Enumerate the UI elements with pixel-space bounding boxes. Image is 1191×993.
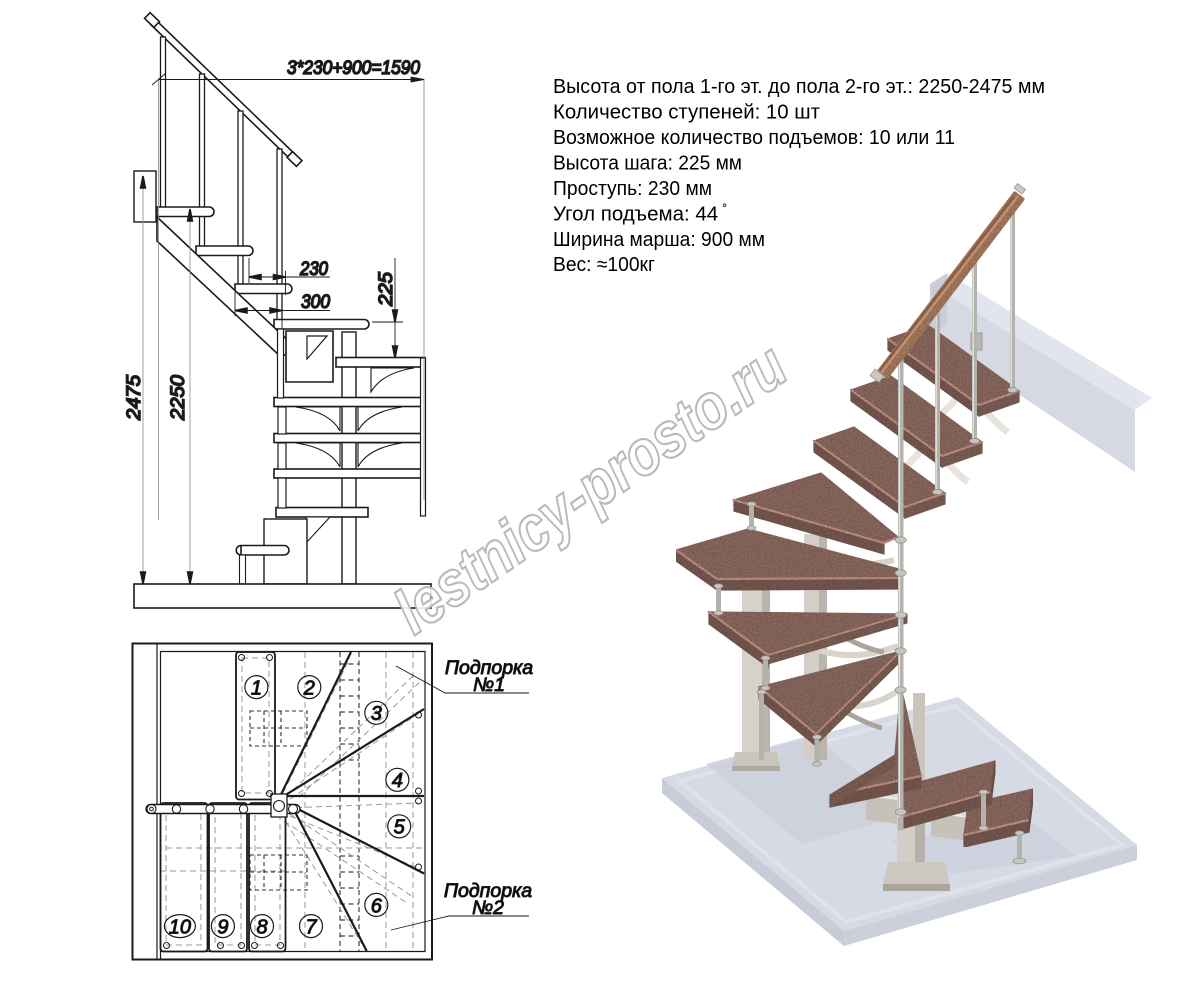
svg-text:Вес: ≈100кг: Вес: ≈100кг [553, 253, 655, 276]
svg-text:7: 7 [305, 917, 317, 939]
svg-text:5: 5 [394, 817, 406, 839]
svg-text:9: 9 [217, 917, 228, 939]
svg-text:3: 3 [371, 703, 382, 725]
svg-text:Количество ступеней: 10 шт: Количество ступеней: 10 шт [553, 101, 821, 124]
svg-text:Высота от пола 1-го эт. до пол: Высота от пола 1-го эт. до пола 2-го эт.… [553, 75, 1045, 98]
svg-text:3*230+900=1590: 3*230+900=1590 [287, 58, 420, 79]
svg-text:230: 230 [299, 259, 328, 280]
svg-text:Высота шага: 225 мм: Высота шага: 225 мм [553, 152, 742, 175]
svg-text:4: 4 [392, 770, 403, 792]
svg-text:1: 1 [251, 678, 262, 700]
svg-text:№2: №2 [472, 897, 504, 919]
svg-text:Возможное количество подъемов:: Возможное количество подъемов: 10 или 11 [553, 126, 955, 149]
svg-text:10: 10 [169, 917, 191, 939]
svg-text:225: 225 [376, 272, 397, 308]
svg-text:300: 300 [301, 292, 330, 313]
svg-text:2: 2 [303, 678, 315, 700]
svg-text:№1: №1 [473, 674, 505, 696]
svg-text:Проступь: 230 мм: Проступь: 230 мм [553, 177, 712, 200]
svg-text:6: 6 [371, 895, 383, 917]
svg-text:8: 8 [256, 917, 267, 939]
svg-text:2250: 2250 [168, 375, 189, 422]
svg-text:Ширина марша: 900 мм: Ширина марша: 900 мм [553, 228, 765, 251]
svg-text:2475: 2475 [124, 375, 145, 422]
svg-text:Угол подъема: 44 ˚: Угол подъема: 44 ˚ [553, 203, 727, 226]
